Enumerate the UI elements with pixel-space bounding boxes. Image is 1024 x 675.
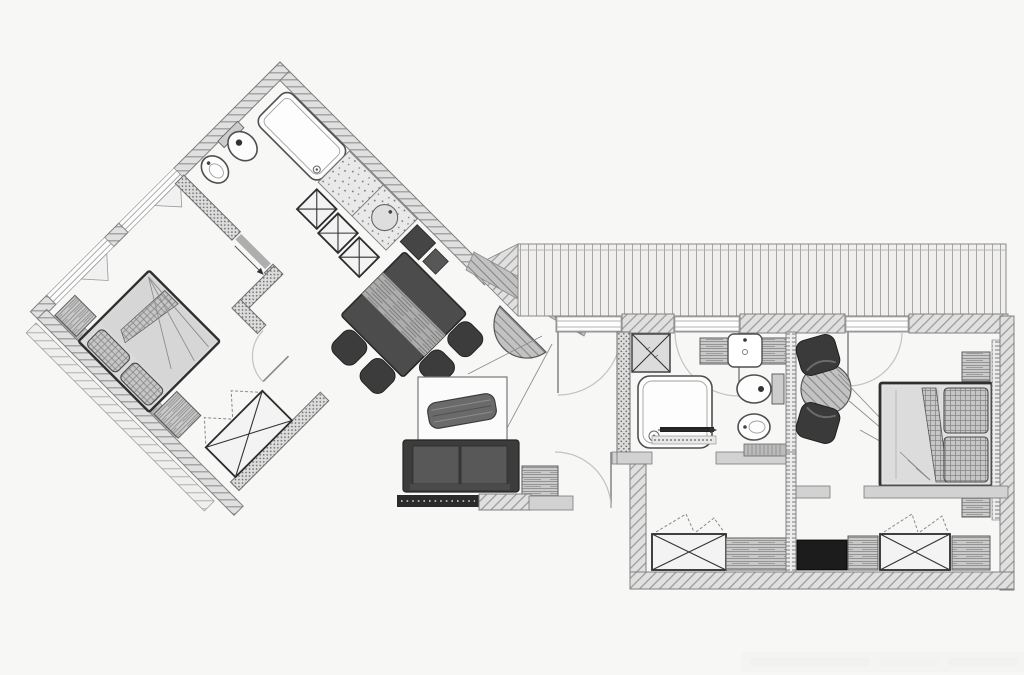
french-window-living bbox=[557, 317, 621, 331]
toilet-tank bbox=[772, 374, 784, 404]
dresser bbox=[952, 536, 990, 570]
balcony-decking bbox=[518, 244, 1006, 316]
side-table bbox=[522, 466, 558, 496]
kitchen-appliance bbox=[423, 249, 448, 274]
window-swing-arc bbox=[558, 332, 621, 395]
wall-segment bbox=[909, 314, 1008, 333]
hall-bottom-wall bbox=[630, 572, 1014, 589]
dresser bbox=[726, 538, 786, 570]
vanity bbox=[700, 334, 786, 367]
shower-stall bbox=[632, 334, 670, 372]
bedroom-1-door-leaf bbox=[263, 356, 288, 381]
wardrobe-1 bbox=[190, 375, 292, 477]
bathroom-2-left-wall bbox=[617, 332, 630, 454]
bathroom-2-bottom-wall bbox=[617, 452, 652, 464]
radiator-2 bbox=[744, 444, 786, 456]
wardrobe-3 bbox=[880, 514, 950, 570]
window-swing-arc bbox=[848, 332, 902, 386]
sofa bbox=[403, 440, 519, 492]
floor-plan-canvas bbox=[0, 0, 1024, 675]
toilet-2 bbox=[737, 374, 784, 404]
wall-stub bbox=[529, 496, 573, 510]
wardrobe-2 bbox=[652, 514, 726, 570]
bathroom-1-wall bbox=[175, 175, 240, 240]
wall-northeast bbox=[271, 62, 494, 285]
french-window-bathroom bbox=[675, 317, 739, 331]
sofa-front-edge bbox=[410, 484, 510, 490]
floor-plan bbox=[0, 0, 1024, 675]
bedroom-2-bottom-wall bbox=[864, 486, 1008, 498]
bedroom-1-door-arc bbox=[238, 331, 289, 382]
sitting-corner bbox=[794, 332, 851, 446]
basin-tap-icon bbox=[743, 338, 747, 342]
wall-right-exterior bbox=[1000, 316, 1014, 590]
plumbing-wall bbox=[786, 332, 796, 464]
pillow bbox=[944, 437, 988, 482]
bathroom-2 bbox=[617, 332, 796, 464]
partition-wall bbox=[786, 452, 796, 572]
french-window-bedroom bbox=[846, 317, 908, 331]
watermark bbox=[742, 652, 1024, 672]
hall-left-wall bbox=[630, 464, 646, 574]
wall-segment bbox=[740, 314, 845, 333]
nightstand bbox=[962, 352, 990, 381]
pillow bbox=[944, 388, 988, 433]
bidet-2 bbox=[738, 414, 770, 440]
double-bed-2 bbox=[880, 383, 992, 486]
wall-under-sofa bbox=[479, 494, 531, 510]
dark-cabinet bbox=[797, 540, 847, 570]
radiator-strip bbox=[397, 495, 479, 507]
wall-segment bbox=[622, 314, 674, 333]
bedroom-2-bottom-wall bbox=[794, 486, 830, 498]
dresser bbox=[848, 536, 878, 570]
